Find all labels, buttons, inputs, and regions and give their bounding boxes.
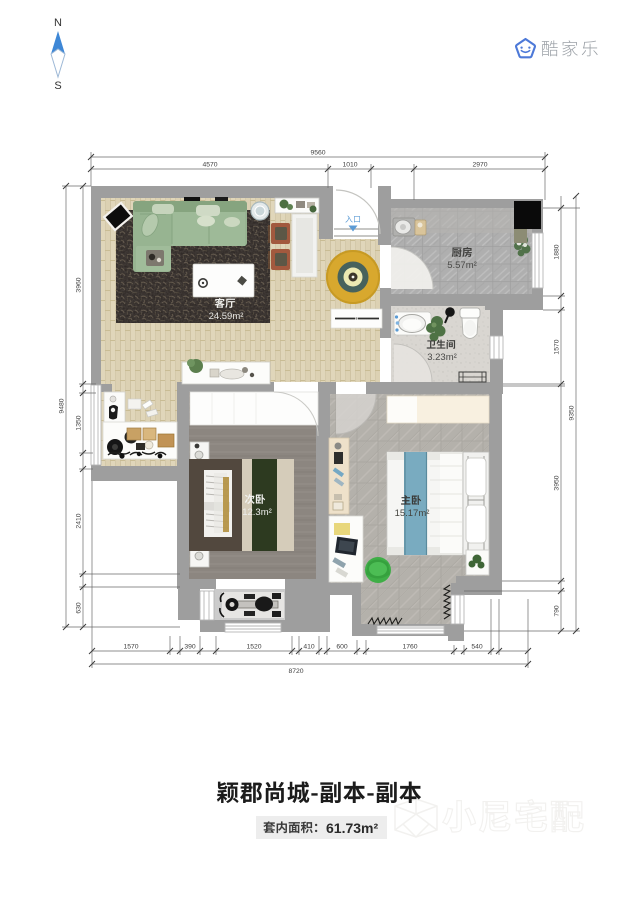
svg-text:9560: 9560	[310, 150, 325, 157]
svg-text:1350: 1350	[76, 415, 83, 430]
svg-text:24.59m²: 24.59m²	[209, 311, 244, 322]
svg-text:3960: 3960	[76, 277, 83, 292]
svg-text:3950: 3950	[554, 475, 561, 490]
svg-text:1570: 1570	[554, 339, 561, 354]
svg-text:2410: 2410	[76, 513, 83, 528]
svg-text:630: 630	[76, 602, 83, 614]
svg-text:8720: 8720	[288, 668, 303, 675]
svg-text:1520: 1520	[246, 644, 261, 651]
svg-text:1880: 1880	[554, 244, 561, 259]
svg-text:410: 410	[303, 644, 315, 651]
svg-text:540: 540	[471, 644, 483, 651]
svg-text:61.73m²: 61.73m²	[326, 820, 378, 836]
svg-text:1570: 1570	[123, 644, 138, 651]
svg-text:15.17m²: 15.17m²	[395, 508, 430, 519]
svg-text:4570: 4570	[202, 162, 217, 169]
svg-text:3.23m²: 3.23m²	[427, 352, 457, 363]
svg-text:9350: 9350	[569, 405, 576, 420]
svg-text:9480: 9480	[59, 398, 66, 413]
svg-text:390: 390	[184, 644, 196, 651]
svg-text:12.3m²: 12.3m²	[242, 507, 272, 518]
svg-text:1010: 1010	[342, 162, 357, 169]
svg-text:S: S	[54, 80, 61, 92]
svg-text:790: 790	[554, 605, 561, 617]
svg-text:5.57m²: 5.57m²	[447, 260, 477, 271]
svg-text:2970: 2970	[472, 162, 487, 169]
svg-text:1760: 1760	[402, 644, 417, 651]
svg-text:N: N	[54, 17, 62, 29]
svg-text:600: 600	[336, 644, 348, 651]
